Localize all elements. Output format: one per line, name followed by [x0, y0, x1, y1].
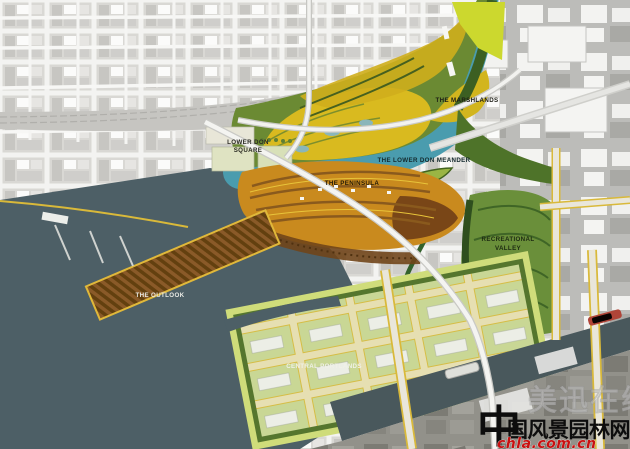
label-outlook: THE OUTLOOK	[136, 292, 185, 299]
master-plan-map: THE MARSHLANDS LOWER DON SQUARE THE LOWE…	[0, 0, 630, 449]
master-plan-screenshot: THE MARSHLANDS LOWER DON SQUARE THE LOWE…	[0, 0, 630, 449]
watermark-url: chla.com.cn	[497, 436, 596, 449]
watermark-overlay-brand: 美迅在线	[528, 383, 630, 417]
label-lower-don-square-1: LOWER DON	[227, 139, 269, 146]
label-lower-don-square-2: SQUARE	[234, 147, 263, 154]
label-recreational-valley-2: VALLEY	[495, 245, 522, 252]
label-peninsula: THE PENINSULA	[325, 180, 380, 187]
label-marshlands: THE MARSHLANDS	[436, 97, 499, 104]
label-central-portlands: CENTRAL PORTLANDS	[286, 363, 362, 370]
label-recreational-valley-1: RECREATIONAL	[482, 236, 535, 243]
label-lower-don-meander: THE LOWER DON MEANDER	[378, 157, 471, 164]
